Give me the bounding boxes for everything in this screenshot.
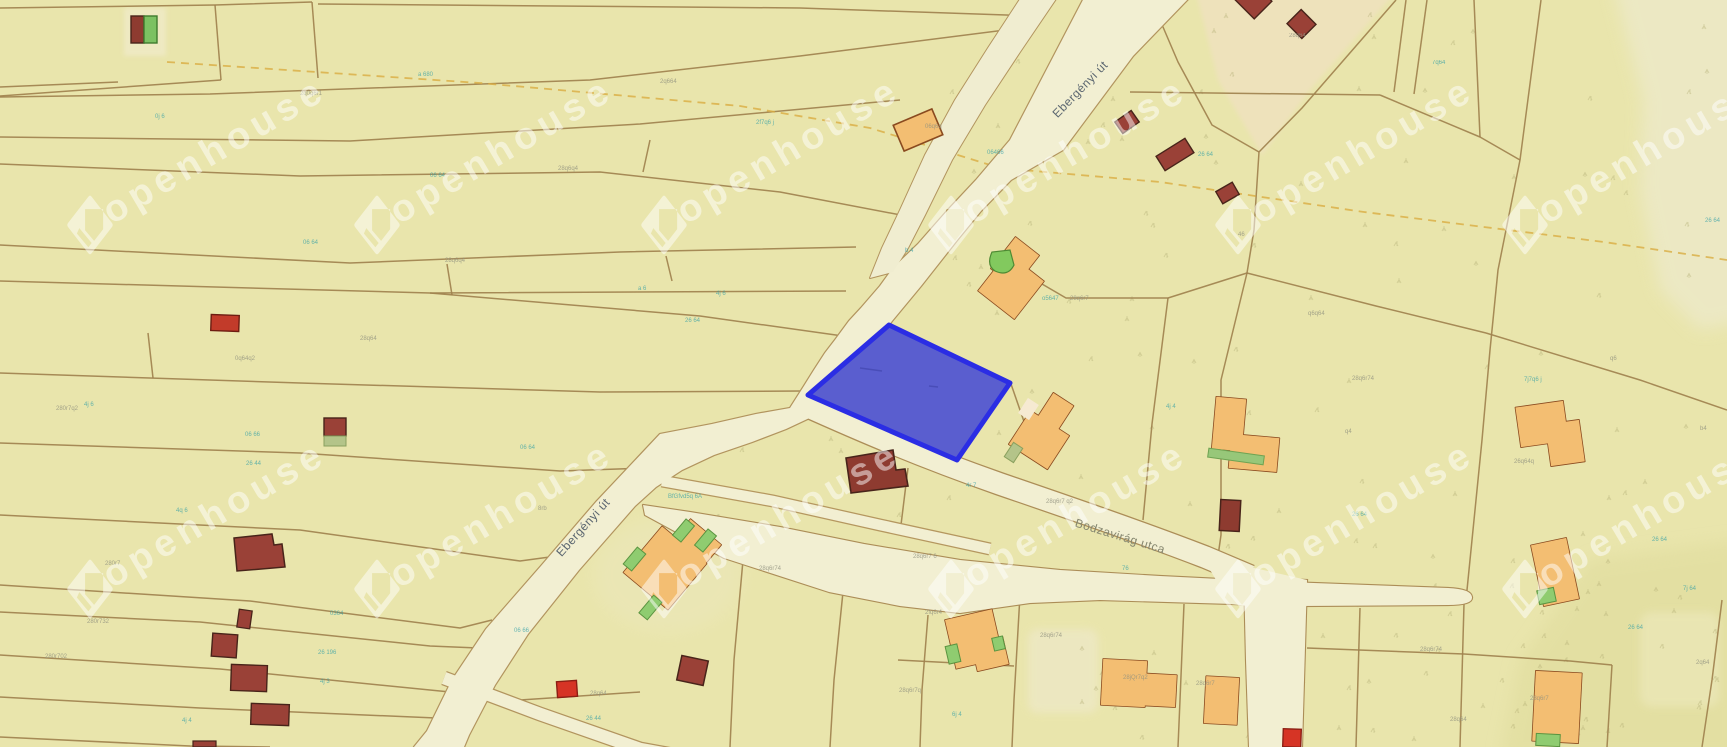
svg-text:28jQr7q2: 28jQr7q2: [1123, 675, 1148, 681]
svg-text:28q6r74: 28q6r74: [1352, 376, 1375, 382]
svg-text:46: 46: [1238, 232, 1245, 238]
svg-text:26 64: 26 64: [1652, 537, 1668, 543]
svg-text:2f7q6 j: 2f7q6 j: [756, 120, 774, 126]
svg-text:4j 4: 4j 4: [1166, 404, 1176, 410]
svg-text:06 64: 06 64: [303, 240, 319, 246]
svg-text:26 64: 26 64: [1705, 218, 1721, 224]
svg-text:7j7q6 j: 7j7q6 j: [1524, 377, 1542, 383]
svg-text:0364: 0364: [330, 611, 344, 617]
svg-text:6j 4: 6j 4: [952, 712, 962, 718]
svg-text:a 6: a 6: [638, 286, 647, 292]
svg-text:0j 6: 0j 6: [155, 114, 165, 120]
svg-text:4j 3: 4j 3: [320, 679, 330, 685]
svg-text:26 196: 26 196: [318, 650, 337, 656]
svg-text:28q6r7: 28q6r7: [1070, 296, 1089, 302]
svg-text:28q64: 28q64: [360, 336, 377, 342]
svg-text:26 64: 26 64: [1628, 625, 1644, 631]
svg-text:BfGfvd5q 6A: BfGfvd5q 6A: [668, 494, 702, 500]
svg-text:4j 6: 4j 6: [84, 402, 94, 408]
svg-text:28q64: 28q64: [1289, 33, 1306, 39]
svg-text:q4: q4: [1345, 429, 1352, 435]
svg-text:28q64: 28q64: [1450, 717, 1467, 723]
svg-text:7j 64: 7j 64: [1683, 586, 1697, 592]
svg-text:26 64: 26 64: [1198, 152, 1214, 158]
svg-text:2q664: 2q664: [660, 79, 677, 85]
svg-text:06 64: 06 64: [520, 445, 536, 451]
svg-text:2q64: 2q64: [1696, 660, 1710, 666]
svg-text:28q6r7: 28q6r7: [1196, 681, 1215, 687]
svg-text:q6: q6: [1610, 356, 1617, 362]
svg-text:4r 7: 4r 7: [966, 483, 977, 489]
svg-text:28q6r74: 28q6r74: [1420, 647, 1443, 653]
svg-text:280r7q2: 280r7q2: [56, 406, 79, 412]
svg-text:4j 6: 4j 6: [716, 291, 726, 297]
svg-text:b 4: b 4: [905, 248, 914, 254]
svg-text:a 680: a 680: [418, 72, 434, 78]
svg-text:4j 4: 4j 4: [182, 718, 192, 724]
svg-text:28q6r74: 28q6r74: [759, 566, 782, 572]
svg-text:0q64q2: 0q64q2: [235, 356, 256, 362]
svg-text:280r732: 280r732: [87, 619, 110, 625]
svg-text:2fq6r4: 2fq6r4: [925, 610, 943, 616]
svg-text:b4: b4: [1700, 426, 1707, 432]
svg-text:06q6q: 06q6q: [925, 124, 942, 130]
svg-text:q6q64: q6q64: [1308, 311, 1325, 317]
svg-text:28q6q4: 28q6q4: [445, 258, 466, 264]
svg-text:28q6r74: 28q6r74: [1040, 633, 1063, 639]
svg-text:06466: 06466: [987, 150, 1004, 156]
svg-text:280r702: 280r702: [45, 654, 68, 660]
svg-text:06 66: 06 66: [245, 432, 261, 438]
svg-text:28q6q4: 28q6q4: [558, 166, 579, 172]
svg-text:28q6r7: 28q6r7: [1530, 696, 1549, 702]
svg-text:76: 76: [1122, 566, 1129, 572]
svg-text:7q64: 7q64: [1432, 60, 1446, 66]
svg-text:28q6r7q: 28q6r7q: [899, 688, 921, 694]
svg-text:06 66: 06 66: [514, 628, 530, 634]
svg-text:26q64q: 26q64q: [1514, 459, 1534, 465]
svg-text:o5647: o5647: [1042, 296, 1059, 302]
svg-text:28q6r7 6: 28q6r7 6: [913, 554, 937, 560]
svg-text:26 44: 26 44: [586, 716, 602, 722]
svg-text:28q64: 28q64: [590, 691, 607, 697]
svg-text:26 64: 26 64: [685, 318, 701, 324]
